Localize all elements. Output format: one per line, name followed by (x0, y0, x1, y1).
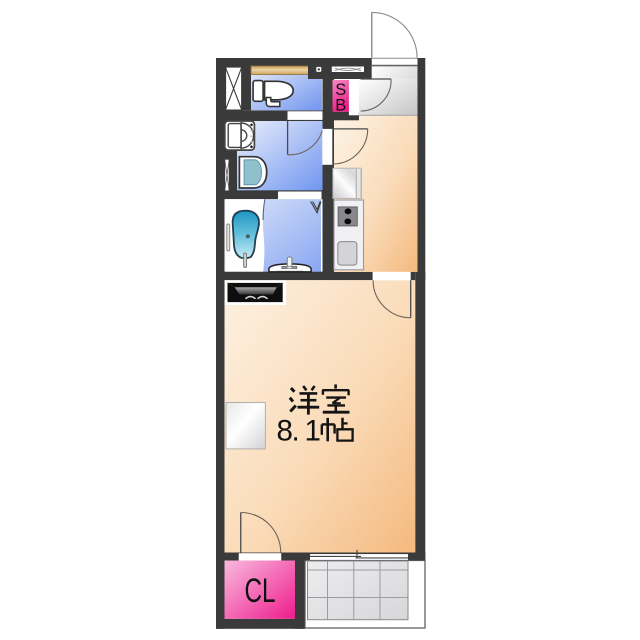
svg-text:CL: CL (245, 572, 276, 610)
svg-text:B: B (335, 96, 346, 114)
svg-text:1: 1 (305, 415, 321, 448)
svg-text:.: . (292, 415, 300, 448)
svg-text:8: 8 (277, 415, 293, 448)
